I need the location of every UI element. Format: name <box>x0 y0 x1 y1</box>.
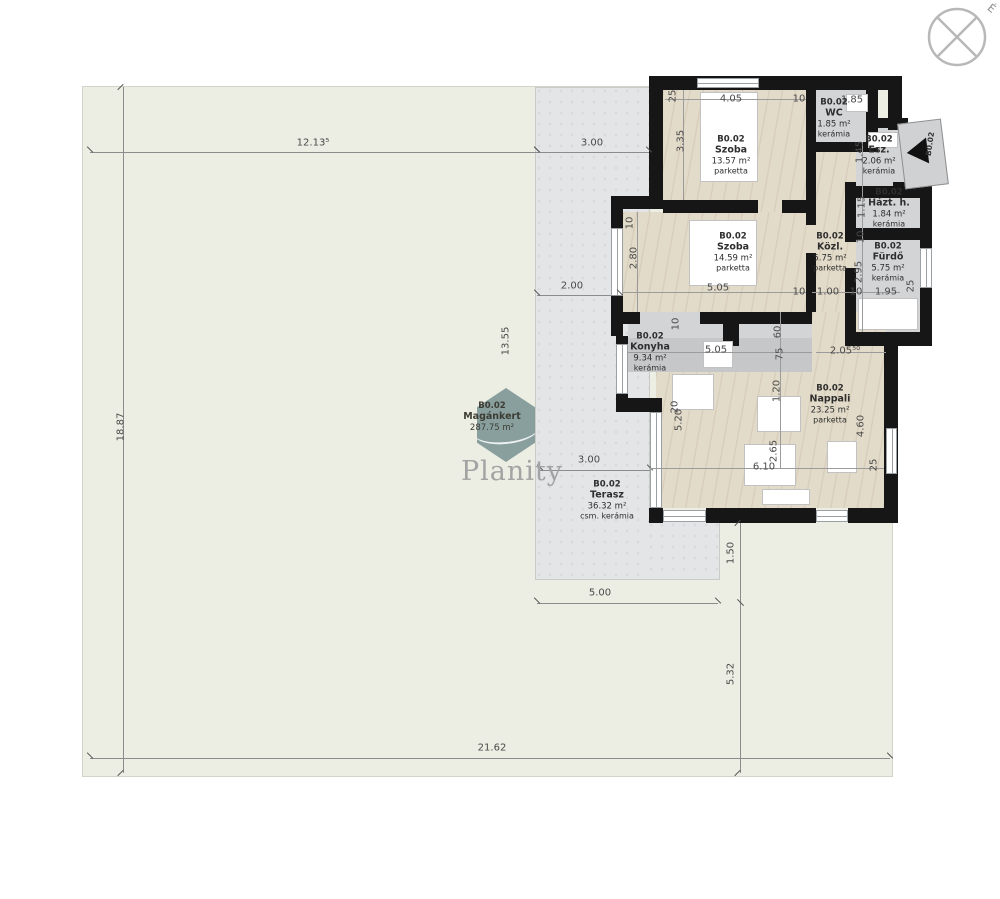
room-label-line: Szoba <box>714 242 753 253</box>
room-label-szoba-2: B0.02Szoba14.59 m²parketta <box>714 231 753 272</box>
room-label-line: B0.02 <box>714 231 753 241</box>
room-label-szoba-1: B0.02Szoba13.57 m²parketta <box>712 134 751 175</box>
room-label-line: 1.84 m² <box>868 209 910 219</box>
room-label-line: 14.59 m² <box>714 253 753 263</box>
planity-wordmark: Planity <box>461 456 563 487</box>
room-label-line: B0.02 <box>712 134 751 144</box>
room-label-magankert: B0.02Magánkert287.75 m² <box>463 401 521 433</box>
room-label-kozlekedo: B0.02Közl.5.75 m²parketta <box>813 231 847 272</box>
room-label-line: Fürdő <box>871 252 904 263</box>
room-label-line: Konyha <box>630 342 670 353</box>
room-label-line: B0.02 <box>813 231 847 241</box>
room-label-line: Házt. h. <box>868 198 910 209</box>
room-label-line: B0.02 <box>871 241 904 251</box>
room-label-line: 2.06 m² <box>862 156 895 166</box>
room-label-konyha: B0.02Konyha9.34 m²kerámia <box>630 331 670 372</box>
room-label-line: csm. kerámia <box>580 511 634 521</box>
room-label-terasz: B0.02Terasz36.32 m²csm. kerámia <box>580 479 634 520</box>
room-label-line: parketta <box>810 415 851 425</box>
room-label-line: Terasz <box>580 490 634 501</box>
floor-plan-canvas: B0.02 Planity É 12.13⁵3.0018.8713.552.00… <box>0 0 1000 899</box>
room-label-line: kerámia <box>630 363 670 373</box>
room-label-line: 23.25 m² <box>810 405 851 415</box>
room-label-line: B0.02 <box>862 134 895 144</box>
room-label-line: Közl. <box>813 242 847 253</box>
room-label-line: B0.02 <box>810 383 851 393</box>
room-label-line: kerámia <box>862 166 895 176</box>
room-label-line: Esz. <box>862 145 895 156</box>
room-label-furdo: B0.02Fürdő5.75 m²kerámia <box>871 241 904 282</box>
room-label-line: WC <box>817 108 850 119</box>
room-label-haztartasi-helyiseg: B0.02Házt. h.1.84 m²kerámia <box>868 187 910 228</box>
room-label-line: parketta <box>712 166 751 176</box>
room-label-line: 287.75 m² <box>463 423 521 433</box>
room-label-line: B0.02 <box>463 401 521 411</box>
room-label-line: B0.02 <box>630 331 670 341</box>
room-label-line: parketta <box>714 263 753 273</box>
room-label-line: Szoba <box>712 145 751 156</box>
room-label-line: B0.02 <box>868 187 910 197</box>
room-label-nappali: B0.02Nappali23.25 m²parketta <box>810 383 851 424</box>
room-label-line: Nappali <box>810 394 851 405</box>
room-label-line: B0.02 <box>817 97 850 107</box>
room-label-line: 5.75 m² <box>871 263 904 273</box>
room-label-wc: B0.02WC1.85 m²kerámia <box>817 97 850 138</box>
room-label-eloszoba: B0.02Esz.2.06 m²kerámia <box>862 134 895 175</box>
compass-icon <box>925 5 989 69</box>
room-label-line: B0.02 <box>580 479 634 489</box>
entrance-marker: B0.02 <box>897 119 949 190</box>
room-label-line: 9.34 m² <box>630 353 670 363</box>
room-label-line: Magánkert <box>463 411 521 422</box>
entrance-unit-label: B0.02 <box>924 131 936 156</box>
room-label-line: 36.32 m² <box>580 501 634 511</box>
room-label-line: 13.57 m² <box>712 156 751 166</box>
room-label-line: kerámia <box>871 273 904 283</box>
room-label-line: 5.75 m² <box>813 253 847 263</box>
room-label-line: 1.85 m² <box>817 119 850 129</box>
room-label-line: parketta <box>813 263 847 273</box>
room-label-line: kerámia <box>817 129 850 139</box>
room-label-line: kerámia <box>868 219 910 229</box>
